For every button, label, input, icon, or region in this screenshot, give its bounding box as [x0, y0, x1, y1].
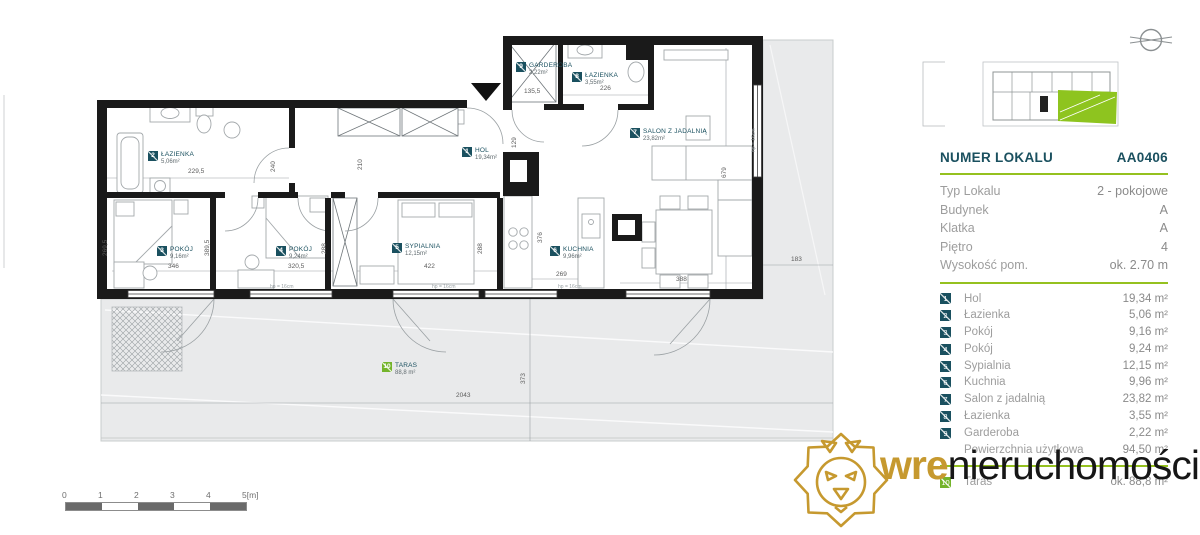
- plan-dimension: 376: [537, 232, 544, 243]
- plan-room-badge: 9: [516, 62, 526, 72]
- unit-info-header: NUMER LOKALU AA0406: [940, 148, 1168, 173]
- shaft-opening: [510, 160, 527, 182]
- window-sill-note: hp = 16cm: [270, 284, 294, 290]
- info-row-wysokosc: Wysokość pom.ok. 2.70 m: [940, 256, 1168, 275]
- plan-dimension: 373: [520, 373, 527, 384]
- plan-dimension: 422: [424, 263, 435, 270]
- plan-dimension: 320,5: [288, 263, 304, 270]
- divider: [940, 173, 1168, 175]
- room-number-badge: 3: [940, 327, 951, 338]
- room-row-1: 1Hol19,34 m²: [940, 291, 1168, 308]
- scale-bar: 012345[m]: [60, 490, 260, 516]
- lion-icon: [788, 424, 894, 530]
- info-row-klatka: KlatkaA: [940, 219, 1168, 238]
- unit-attributes: Typ Lokalu2 - pokojowe BudynekA KlatkaA …: [940, 182, 1168, 275]
- plan-room-label-2: 2ŁAZIENKA5,06m²: [148, 151, 194, 166]
- plan-dimension: 135,5: [524, 88, 540, 95]
- plan-room-badge: 10: [382, 362, 392, 372]
- room-number-badge: 8: [940, 411, 951, 422]
- window-sill-note: hp = 16cm: [558, 284, 582, 290]
- plan-room-label-9: 9GARDEROBA2,22m²: [516, 62, 572, 77]
- info-row-pietro: Piętro4: [940, 238, 1168, 257]
- plan-room-badge: 7: [630, 128, 640, 138]
- room-number-badge: 1: [940, 293, 951, 304]
- scale-tick: 1: [98, 490, 103, 500]
- plan-room-badge: 2: [148, 151, 158, 161]
- plan-room-label-7: 7SALON Z JADALNIĄ23,82m²: [630, 128, 707, 143]
- shaft-opening-2: [618, 220, 635, 235]
- room-number-badge: 9: [940, 428, 951, 439]
- plan-room-label-4: 4POKÓJ9,24m²: [276, 246, 312, 261]
- plan-dimension: 389,5: [204, 240, 211, 256]
- compass-icon: [1130, 30, 1172, 51]
- scale-tick: 2: [134, 490, 139, 500]
- plan-dimension: 129: [511, 137, 518, 148]
- brand-nieruchomosci: nieruchomości: [948, 442, 1199, 488]
- info-row-budynek: BudynekA: [940, 201, 1168, 220]
- divider: [940, 282, 1168, 284]
- brand-wre: wre: [880, 442, 948, 488]
- room-row-2: 2Łazienka5,06 m²: [940, 307, 1168, 324]
- room-row-5: 5Sypialnia12,15 m²: [940, 358, 1168, 375]
- unit-info-panel: NUMER LOKALU AA0406 Typ Lokalu2 - pokojo…: [940, 148, 1168, 490]
- unit-locator-map: [983, 62, 1118, 126]
- room-number-badge: 6: [940, 377, 951, 388]
- plan-dimension: 210: [357, 159, 364, 170]
- plan-room-label-6: 6KUCHNIA9,96m²: [550, 246, 594, 261]
- plan-dimension: 2043: [456, 392, 470, 399]
- room-number-badge: 2: [940, 310, 951, 321]
- plan-dimension: 288: [321, 243, 328, 254]
- plan-room-badge: 4: [276, 246, 286, 256]
- info-row-typ: Typ Lokalu2 - pokojowe: [940, 182, 1168, 201]
- plan-dimension: 679: [721, 167, 728, 178]
- plan-room-label-3: 3POKÓJ9,16m²: [157, 246, 193, 261]
- plan-dimension: 346: [168, 263, 179, 270]
- plan-dimension: 229,5: [188, 168, 204, 175]
- plan-room-label-10: 10TARAS88,8 m²: [382, 362, 417, 377]
- room-number-badge: 5: [940, 361, 951, 372]
- numer-lokalu-label: NUMER LOKALU: [940, 150, 1053, 165]
- apartment-plan-page: { "sidebar": { "header": {"label": "NUME…: [0, 0, 1200, 530]
- scale-tick: 5[m]: [242, 490, 259, 500]
- window-sill-note: hp = 16cm: [751, 129, 757, 153]
- room-list: 1Hol19,34 m² 2Łazienka5,06 m² 3Pokój9,16…: [940, 291, 1168, 459]
- plan-room-label-5: 5SYPIALNIA12,15m²: [392, 243, 440, 258]
- scale-tick: 0: [62, 490, 67, 500]
- plan-dimension: 240: [270, 161, 277, 172]
- entrance-arrow: [471, 83, 501, 101]
- plan-room-badge: 3: [157, 246, 167, 256]
- room-row-3: 3Pokój9,16 m²: [940, 324, 1168, 341]
- plan-dimension: 183: [791, 256, 802, 263]
- plan-dimension: 388: [676, 276, 687, 283]
- room-row-4: 4Pokój9,24 m²: [940, 341, 1168, 358]
- room-row-6: 6Kuchnia9,96 m²: [940, 374, 1168, 391]
- plan-room-badge: 5: [392, 243, 402, 253]
- doormat-hatch: [112, 307, 182, 371]
- room-row-9: 9Garderoba2,22 m²: [940, 425, 1168, 442]
- plan-dimension: 288: [477, 243, 484, 254]
- room-row-7: 7Salon z jadalnią23,82 m²: [940, 391, 1168, 408]
- plan-room-badge: 8: [572, 72, 582, 82]
- plan-room-badge: 6: [550, 246, 560, 256]
- locator-highlighted-unit: [1058, 90, 1117, 124]
- room-number-badge: 7: [940, 394, 951, 405]
- plan-room-badge: 1: [462, 147, 472, 157]
- scale-tick: 3: [170, 490, 175, 500]
- plan-room-label-8: 8ŁAZIENKA3,55m²: [572, 72, 618, 87]
- plan-dimension: 269,5: [102, 240, 109, 256]
- window-sill-note: hp = 16cm: [432, 284, 456, 290]
- room-row-8: 8Łazienka3,55 m²: [940, 408, 1168, 425]
- brand-wordmark: wrenieruchomości: [880, 441, 1199, 489]
- plan-room-label-1: 1HOL19,34m²: [462, 147, 497, 162]
- room-number-badge: 4: [940, 344, 951, 355]
- scale-tick: 4: [206, 490, 211, 500]
- scale-bar-segments: [65, 502, 247, 511]
- plan-dimension: 269: [556, 271, 567, 278]
- unit-number: AA0406: [1117, 150, 1168, 165]
- unit-locator-map: [923, 62, 945, 126]
- locator-stair-shaft: [1040, 96, 1048, 112]
